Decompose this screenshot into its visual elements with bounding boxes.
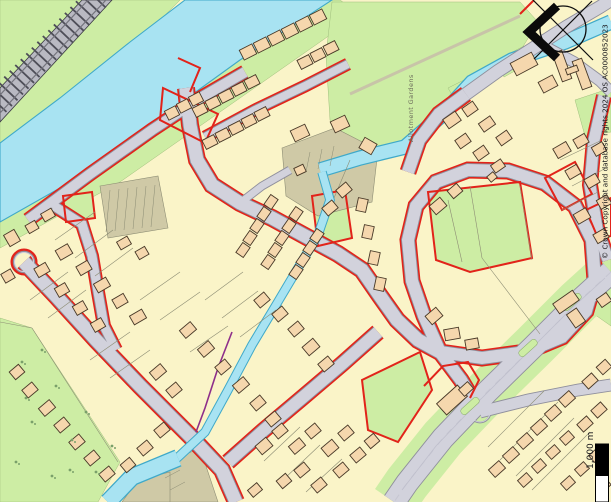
building bbox=[374, 277, 386, 292]
building bbox=[362, 225, 374, 240]
copyright-text: © Crown Copyright and database rights 20… bbox=[601, 24, 610, 259]
scale-label: 1,000 m bbox=[586, 432, 596, 469]
map-viewport[interactable]: Allotment Gardens © Crown Copyright and … bbox=[0, 0, 611, 502]
building bbox=[356, 198, 368, 213]
building bbox=[444, 327, 461, 340]
allotment-gardens-label: Allotment Gardens bbox=[407, 74, 415, 142]
building bbox=[465, 338, 480, 350]
building bbox=[368, 251, 380, 266]
map-canvas[interactable]: Allotment Gardens © Crown Copyright and … bbox=[0, 0, 611, 502]
